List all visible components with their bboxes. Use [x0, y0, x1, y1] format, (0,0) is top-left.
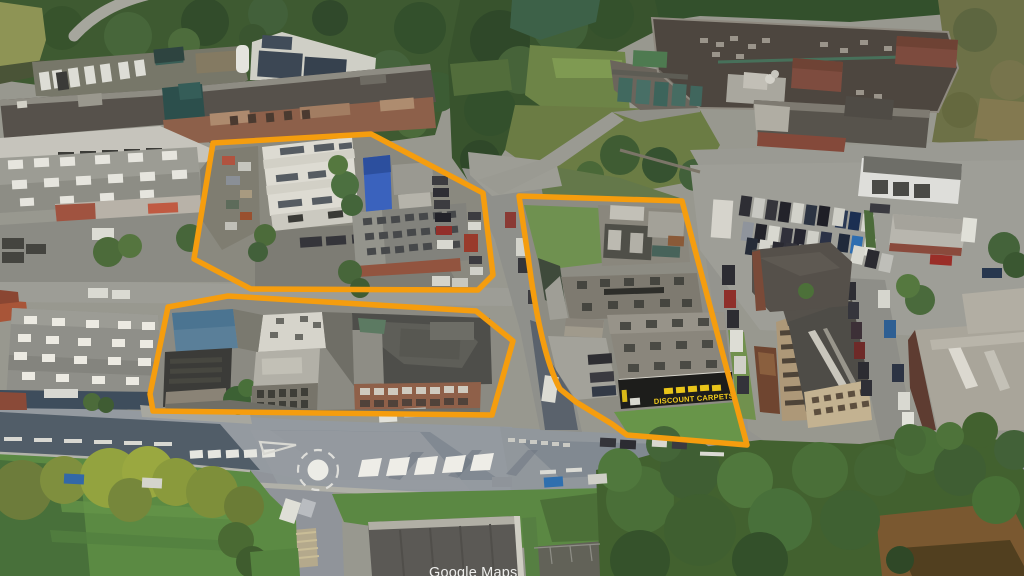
svg-text:Google Maps: Google Maps	[429, 565, 517, 576]
